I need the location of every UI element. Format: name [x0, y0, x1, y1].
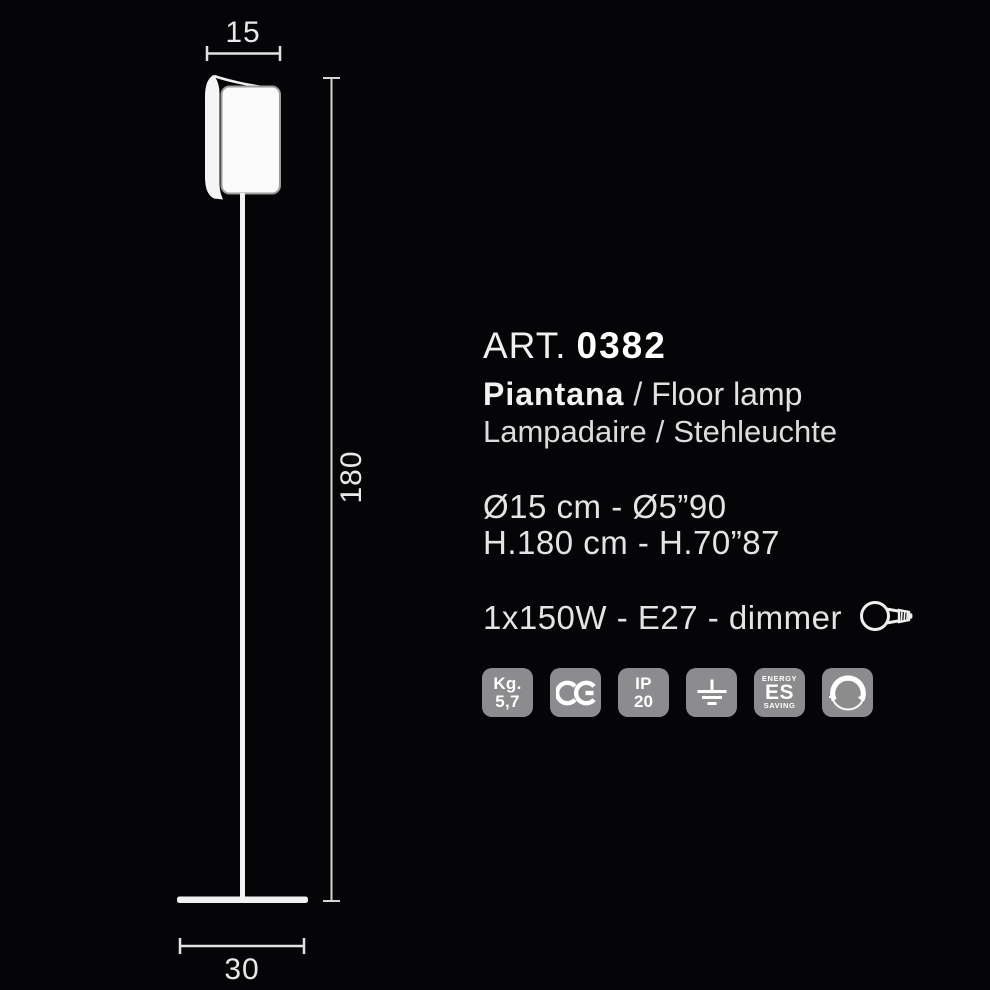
- height-spec: H.180 cm - H.70”87: [483, 525, 780, 561]
- diameter-spec: Ø15 cm - Ø5”90: [483, 489, 727, 525]
- ip-label: IP: [635, 675, 652, 693]
- article-number: 0382: [577, 325, 667, 366]
- article-number-line: ART.0382: [483, 326, 667, 366]
- product-name-en: Floor lamp: [651, 376, 802, 412]
- weight-unit-label: Kg.: [493, 675, 521, 693]
- badge-ground: [686, 668, 737, 717]
- product-name-line-2: Lampadaire/Stehleuchte: [483, 414, 837, 450]
- ip-value: 20: [634, 693, 653, 711]
- product-name-fr: Lampadaire: [483, 414, 647, 449]
- name-separator: /: [656, 414, 665, 449]
- earth-ground-icon: [695, 677, 729, 709]
- certification-badges-row: Kg. 5,7 IP 20: [482, 668, 873, 717]
- badge-ce: [550, 668, 601, 717]
- energy-es-label: ES: [765, 683, 794, 702]
- energy-bottom-label: SAVING: [764, 702, 796, 710]
- lamp-base: [177, 897, 308, 904]
- dimension-height-label: 180: [335, 447, 369, 507]
- lamp-pole: [240, 193, 245, 897]
- lamp-shade: [222, 87, 281, 194]
- name-separator: /: [633, 376, 642, 412]
- dimension-width-label: 15: [203, 16, 283, 50]
- badge-weight: Kg. 5,7: [482, 668, 533, 717]
- power-spec: 1x150W - E27 - dimmer: [483, 599, 842, 636]
- badge-ip-rating: IP 20: [618, 668, 669, 717]
- power-spec-line: 1x150W - E27 - dimmer: [483, 596, 916, 636]
- product-datasheet-page: 15 180 30 ART.0382 Piantana/Floor lamp L…: [0, 0, 990, 990]
- badge-energy-saving: ENERGY ES SAVING: [754, 668, 805, 717]
- light-bulb-e27-icon: [858, 596, 916, 636]
- product-name-it: Piantana: [483, 376, 624, 412]
- dimension-base-label: 30: [178, 953, 306, 987]
- dimmer-knob-icon: [827, 672, 869, 714]
- ce-marking-icon: [556, 680, 596, 706]
- article-prefix: ART.: [483, 325, 567, 366]
- badge-dimmer: [822, 668, 873, 717]
- product-name-de: Stehleuchte: [673, 414, 837, 449]
- lamp-head-back-plate: [205, 75, 223, 200]
- weight-value-label: 5,7: [495, 693, 520, 711]
- dimension-line-base: [180, 938, 304, 954]
- product-name-line-1: Piantana/Floor lamp: [483, 376, 802, 412]
